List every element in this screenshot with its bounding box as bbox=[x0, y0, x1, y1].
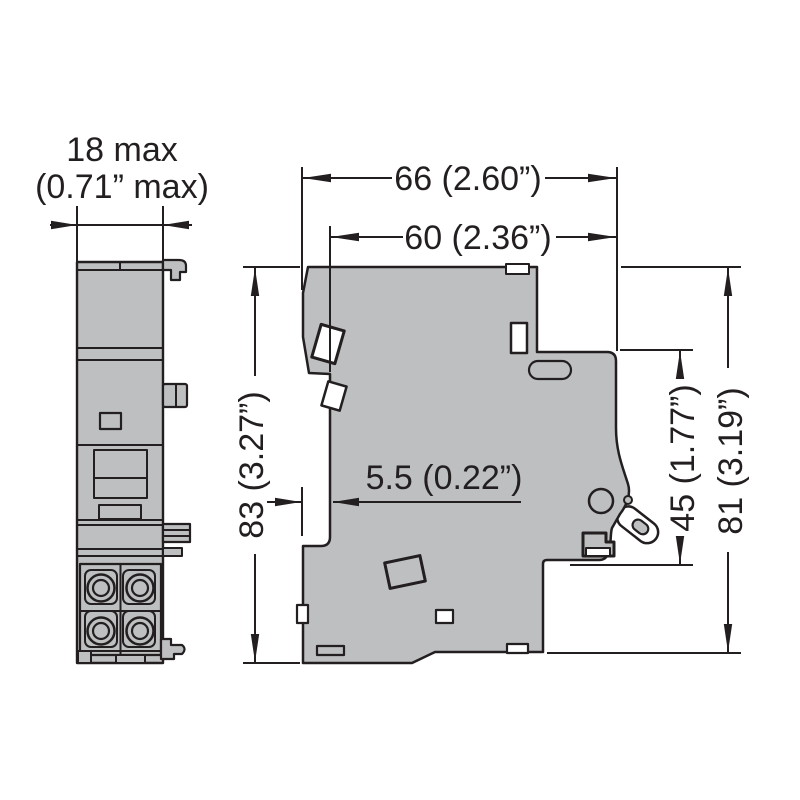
aux-terminal-screw-inner bbox=[93, 580, 109, 596]
aux-terminal-screw-inner bbox=[132, 623, 148, 639]
dim-label-83: 83 (3.27”) bbox=[233, 391, 271, 538]
aux-connector-tab bbox=[163, 524, 190, 542]
arrowhead bbox=[588, 233, 616, 241]
arrowhead bbox=[331, 233, 359, 241]
breaker-front-slot bbox=[511, 323, 527, 353]
arrowhead bbox=[724, 268, 732, 296]
breaker-small-slot bbox=[436, 610, 453, 623]
aux-foot bbox=[78, 651, 91, 663]
arrowhead bbox=[724, 624, 732, 652]
breaker-lower-recess bbox=[385, 556, 426, 589]
dim-label-66: 66 (2.60”) bbox=[394, 160, 541, 198]
breaker-top-slot bbox=[506, 264, 529, 274]
dimension-drawing: 18 max (0.71” max) 66 (2.60”) 60 (2.36”) bbox=[0, 0, 800, 800]
aux-label-window bbox=[100, 413, 121, 429]
dim-label-81: 81 (3.19”) bbox=[712, 387, 750, 534]
dim-label-60: 60 (2.36”) bbox=[404, 219, 551, 257]
arrowhead bbox=[275, 498, 301, 506]
aux-connector-pin bbox=[163, 548, 182, 556]
breaker-mount-hole bbox=[589, 489, 613, 513]
dim-aux-width: 18 max (0.71” max) bbox=[35, 131, 209, 261]
aux-terminal-screw-inner bbox=[132, 580, 148, 596]
dim-label-18max-line2: (0.71” max) bbox=[35, 168, 209, 206]
breaker-rear-tab bbox=[297, 605, 308, 623]
breaker-foot-bump bbox=[317, 646, 344, 655]
breaker-pivot-dot bbox=[624, 496, 632, 504]
arrowhead bbox=[251, 634, 259, 662]
arrowhead bbox=[676, 351, 684, 379]
aux-terminal-screw-inner bbox=[93, 623, 109, 639]
breaker-oval-recess bbox=[529, 361, 571, 379]
aux-top-hook bbox=[163, 260, 186, 280]
dim-label-45: 45 (1.77”) bbox=[664, 384, 702, 531]
breaker-bottom-tab bbox=[507, 644, 528, 653]
dim-label-18max-line1: 18 max bbox=[66, 131, 178, 169]
front-view-aux-contact bbox=[77, 260, 190, 663]
dim-label-5-5: 5.5 (0.22”) bbox=[366, 459, 523, 497]
arrowhead bbox=[303, 174, 331, 182]
arrowhead bbox=[588, 174, 616, 182]
aux-bottom-hook bbox=[161, 639, 185, 659]
dim-overall-height: 83 (3.27”) bbox=[233, 267, 300, 663]
arrowhead bbox=[163, 221, 189, 229]
aux-foot bbox=[116, 655, 145, 663]
arrowhead bbox=[51, 221, 77, 229]
arrowhead bbox=[251, 268, 259, 296]
breaker-din-latch-slot bbox=[586, 548, 610, 556]
arrowhead bbox=[676, 536, 684, 564]
dimension-drawing-page: 18 max (0.71” max) 66 (2.60”) 60 (2.36”) bbox=[0, 0, 800, 800]
